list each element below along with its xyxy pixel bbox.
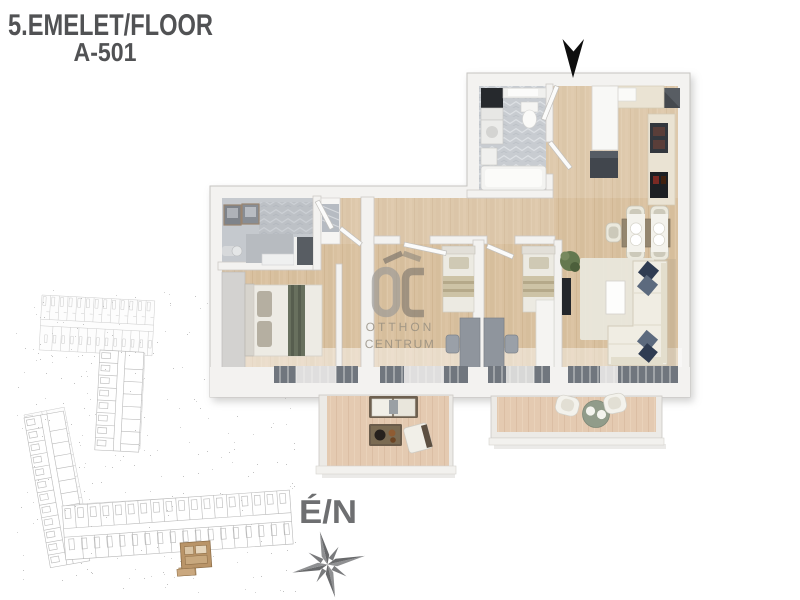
svg-text:CENTRUM: CENTRUM bbox=[365, 337, 436, 351]
svg-text:É/N: É/N bbox=[299, 493, 357, 530]
svg-text:A-501: A-501 bbox=[74, 37, 137, 67]
svg-text:OTTHON: OTTHON bbox=[366, 320, 435, 334]
